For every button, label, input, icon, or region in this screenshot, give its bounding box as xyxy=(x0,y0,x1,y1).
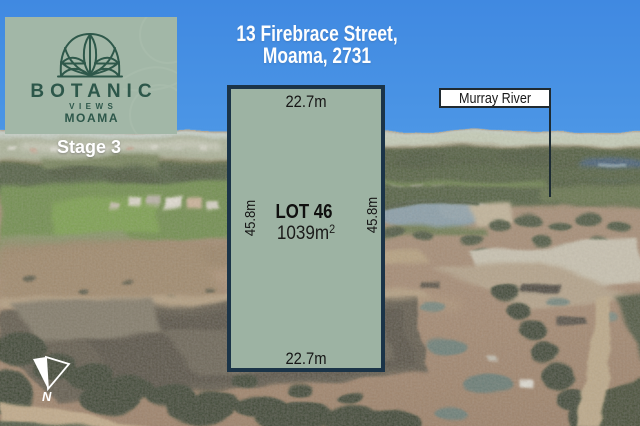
svg-text:N: N xyxy=(42,389,52,404)
